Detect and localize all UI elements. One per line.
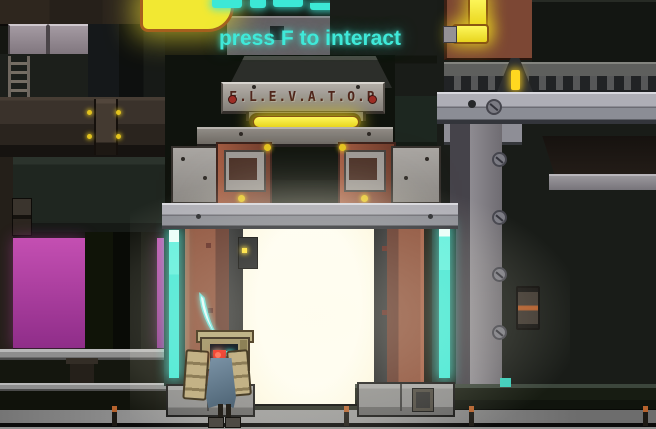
interaction-prompt: press F to interact [170,27,450,51]
beam-screw [486,99,502,115]
floor [0,410,656,423]
crossbeam-bolt [196,214,201,219]
machine-dark-hood [532,0,656,67]
wall-dark-recess [85,232,165,350]
sign-dot-right [368,95,377,104]
tower-plate-left [171,146,220,204]
metal-crate-right [357,382,455,417]
elevator-crossbeam [162,203,458,229]
machine-hatch-lip [549,174,656,190]
machine-vent-switch [516,286,540,330]
tower-inner-dark [349,158,377,180]
ledge-rivet [239,132,243,136]
game-viewport: E.L.E.V.A.T.O.R [0,0,656,429]
crate-seam [400,384,402,411]
player-foot [225,417,241,428]
player-hair-glow [215,352,221,358]
sign-rivet [252,85,256,89]
ledge-rivet [367,132,371,136]
pipe-light [87,134,92,139]
beam-hole [468,100,476,108]
pipe-coupling [94,99,118,155]
neon-text-fragment [273,0,303,7]
tower-light [361,195,368,202]
player-character [180,292,256,428]
tower-light [264,144,271,151]
panel-screw [492,152,507,167]
column-rivet [382,310,387,315]
neon-text-fragment [212,0,242,8]
machine-beam [437,92,656,124]
cyan-light-strip-right [439,224,450,378]
wall-block-stack [12,198,32,236]
neon-text-fragment [250,0,266,8]
tower-rivet [181,157,185,161]
panel-screw [492,210,507,225]
wall-light-panel [8,24,48,56]
support-post-cap [643,406,648,412]
tower-light [339,144,346,151]
wall-edge-column [0,157,13,378]
elevator-door[interactable] [242,220,376,410]
support-post-cap [469,406,474,412]
support-post-cap [112,406,117,412]
sign-rivet [356,85,360,89]
magenta-glow-panel [13,238,85,348]
tower-rivet [425,157,429,161]
robot-arm-left [182,349,209,401]
pipe-horizontal [0,97,170,160]
tower-plate-right [391,146,441,204]
elevator-sign-label: E.L.E.V.A.T.O.R [229,90,376,105]
pipe-light [116,134,121,139]
column-rivet [206,243,211,248]
panel-screw [492,267,507,282]
machine-rail-teeth [444,76,656,90]
indicator-light [511,70,520,90]
elevator-call-panel[interactable] [238,237,258,269]
walkway-ledge [0,383,168,391]
wall-light-panel [48,24,92,56]
tower-light [238,195,245,202]
column-rivet [382,246,387,251]
pipe-light [116,110,121,115]
tower-inner-dark [229,158,257,180]
call-panel-light [242,248,247,253]
crate-latch [412,388,434,412]
cyan-light-strip-left [169,230,179,378]
sign-dot-left [228,95,237,104]
crossbeam-bolt [428,214,433,219]
ladder [8,56,30,98]
wall-dark-slabs [88,24,165,97]
player-cloak [206,358,236,408]
panel-screw [492,325,507,340]
elevator-sign-plate: E.L.E.V.A.T.O.R [221,82,385,114]
neon-tube-elbow [452,24,489,44]
pipe-stub-body [70,364,94,383]
tower-rivet [203,176,207,180]
tower-rivet [404,176,408,180]
teal-chip [500,378,511,387]
floor-dark-left [0,391,172,412]
support-post-cap [344,406,349,412]
pipe-light [87,110,92,115]
machine-rail [444,62,656,76]
player-foot [208,417,224,428]
